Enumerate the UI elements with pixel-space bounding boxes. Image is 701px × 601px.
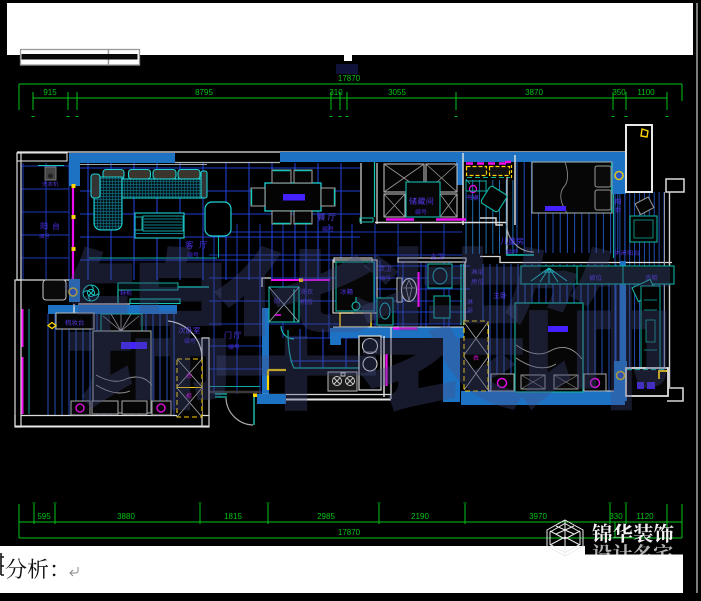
svg-text:1120: 1120: [636, 512, 654, 521]
svg-text:310: 310: [329, 88, 343, 97]
svg-text:8795: 8795: [195, 88, 213, 97]
svg-text:2190: 2190: [411, 512, 429, 521]
svg-text:3970: 3970: [529, 512, 547, 521]
svg-text:915: 915: [43, 88, 57, 97]
svg-text:3880: 3880: [117, 512, 135, 521]
svg-text:1815: 1815: [224, 512, 242, 521]
svg-text:595: 595: [37, 512, 51, 521]
svg-text:17870: 17870: [338, 528, 361, 537]
svg-text:2985: 2985: [317, 512, 335, 521]
svg-text:3055: 3055: [388, 88, 406, 97]
svg-text:3870: 3870: [525, 88, 543, 97]
svg-text:350: 350: [612, 88, 626, 97]
svg-text:1100: 1100: [637, 88, 655, 97]
svg-text:17870: 17870: [338, 74, 361, 83]
svg-text:330: 330: [609, 512, 623, 521]
